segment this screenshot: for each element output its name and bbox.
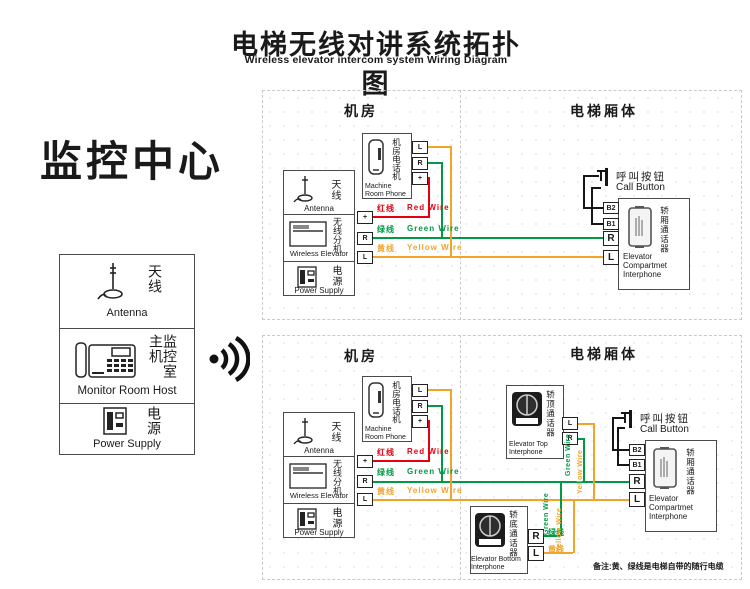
wire-label-green: 绿线 Green Wire	[377, 224, 460, 235]
terminal-r: R	[412, 400, 428, 413]
red-wire	[373, 460, 430, 462]
call-button-wire	[591, 188, 593, 225]
terminal-plus: +	[412, 415, 428, 428]
antenna-icon	[293, 417, 315, 447]
call-button-icon	[600, 171, 602, 181]
wireless-unit-label-en: Wireless Elevator	[284, 250, 354, 259]
terminal-b1: B1	[629, 459, 645, 471]
terminal-l: L	[357, 493, 373, 506]
compartment-interphone-icon	[652, 447, 678, 489]
wiring-diagram-canvas: 电梯无线对讲系统拓扑图 Wireless elevator intercom s…	[0, 0, 750, 589]
call-button-wire	[583, 175, 599, 177]
monitor-antenna-label-zh: 天线	[148, 264, 162, 306]
compartment-interphone-label-zh: 轿厢通话器	[660, 206, 669, 254]
speaker-icon	[474, 512, 506, 548]
station-divider-1	[283, 456, 355, 457]
handset-icon	[366, 382, 386, 420]
wire-label-green: 绿线 Green Wire	[377, 467, 460, 478]
bottom-elevator-car-header: 电梯厢体	[570, 344, 638, 364]
monitor-divider-1	[59, 328, 195, 329]
bottom-diagram-divider	[460, 335, 461, 580]
wireless-unit-icon	[289, 221, 327, 247]
monitor-power-label-en: Power Supply	[61, 438, 193, 451]
terminal-r: R	[357, 475, 373, 488]
call-button-wire	[583, 207, 603, 209]
bottom-interphone-label-zh: 轿底通话器	[509, 510, 518, 560]
call-button-wire	[617, 428, 619, 466]
call-button-label-en: Call Button	[616, 182, 665, 193]
wire-label-red: 红线 Red Wire	[377, 203, 450, 214]
compartment-interphone-label-zh: 轿厢通话器	[686, 448, 695, 496]
terminal-plus: +	[412, 172, 428, 185]
call-button-wire	[617, 427, 625, 429]
machine-room-phone-label-en: Machine Room Phone	[365, 183, 411, 199]
page-subtitle: Wireless elevator intercom system Wiring…	[231, 54, 521, 66]
station-divider-2	[283, 261, 355, 262]
green-wire	[428, 162, 441, 164]
terminal-l: L	[357, 251, 373, 264]
yellow-wire	[573, 501, 575, 553]
green-wire-en: Green Wire	[407, 224, 460, 235]
top-interphone-label-zh: 轿顶通话器	[546, 390, 555, 440]
top-diagram-divider	[460, 90, 461, 320]
compartment-interphone-label-en: Elevator Compartmet Interphone	[623, 252, 687, 280]
yellow-wire-vertical-label: Yellow Wire	[577, 450, 584, 494]
station-divider-1	[283, 214, 355, 215]
speaker-icon	[511, 391, 543, 427]
wireless-unit-icon	[289, 463, 327, 489]
monitor-center-title: 监控中心	[40, 128, 224, 189]
bottom-machine-room-header: 机房	[344, 346, 378, 366]
machine-room-phone-label-zh: 机房电话机	[392, 138, 401, 184]
terminal-l: L	[528, 546, 544, 561]
wire-label-yellow: 黄线 Yellow Wire	[377, 486, 462, 497]
yellow-wire	[450, 389, 452, 501]
terminal-l: L	[562, 417, 578, 430]
terminal-r: R	[629, 474, 645, 489]
monitor-host-label-zh: 监控室主机	[143, 334, 177, 384]
antenna-icon	[96, 261, 126, 303]
wire-label-red: 红线 Red Wire	[377, 447, 450, 458]
terminal-l: L	[412, 384, 428, 397]
station-divider-2	[283, 503, 355, 504]
top-machine-room-header: 机房	[344, 101, 378, 121]
yellow-wire	[428, 146, 450, 148]
terminal-l: L	[603, 250, 619, 265]
yellow-wire	[593, 423, 595, 501]
handset-icon	[366, 139, 386, 177]
green-wire	[373, 237, 603, 239]
footnote: 备注:黄、绿线是电梯自带的随行电缆	[593, 561, 724, 572]
yellow-wire	[450, 146, 452, 257]
bottom-interphone-label-en: Elevator Bottom Interphone	[471, 556, 527, 572]
terminal-r: R	[412, 157, 428, 170]
terminal-l: L	[412, 141, 428, 154]
yellow-wire-en: Yellow Wire	[407, 243, 462, 254]
call-button-icon	[624, 413, 626, 423]
yellow-wire-en: Yellow Wire	[407, 486, 462, 497]
monitor-divider-2	[59, 403, 195, 404]
red-wire-zh: 红线	[377, 203, 395, 214]
green-wire-vertical-label: Green Wire	[565, 434, 572, 476]
monitor-host-phone-icon	[74, 339, 138, 381]
yellow-wire-zh: 黄线	[377, 486, 395, 497]
green-wire-vertical-label: Green Wire	[543, 493, 550, 535]
call-button-wire	[583, 176, 585, 209]
red-wire-en: Red Wire	[407, 203, 450, 214]
compartment-interphone-label-en: Elevator Compartmet Interphone	[649, 494, 713, 522]
station-antenna-label-en: Antenna	[284, 446, 354, 455]
call-button-wire	[591, 187, 601, 189]
top-interphone-label-en: Elevator Top Interphone	[509, 441, 563, 457]
terminal-l: L	[629, 492, 645, 507]
red-wire-en: Red Wire	[407, 447, 450, 458]
station-power-label-en: Power Supply	[284, 286, 354, 295]
top-elevator-car-header: 电梯厢体	[570, 101, 638, 121]
terminal-b2: B2	[629, 444, 645, 456]
call-button-icon	[629, 410, 632, 428]
wireless-unit-label-en: Wireless Elevator	[284, 492, 354, 501]
call-button-icon	[597, 170, 605, 172]
station-antenna-label-en: Antenna	[284, 204, 354, 213]
yellow-wire	[373, 256, 603, 258]
green-wire	[428, 405, 441, 407]
call-button-label-en: Call Button	[640, 424, 689, 435]
wire-label-yellow: 黄线 Yellow Wire	[377, 243, 462, 254]
call-button-icon	[621, 412, 629, 414]
station-power-label-en: Power Supply	[284, 528, 354, 537]
terminal-plus: +	[357, 455, 373, 468]
compartment-interphone-icon	[627, 206, 653, 248]
power-supply-icon	[297, 508, 317, 530]
call-button-wire	[612, 418, 614, 451]
yellow-wire-vertical-label: Yellow Wire	[556, 508, 563, 552]
monitor-antenna-label-en: Antenna	[61, 307, 193, 320]
terminal-b2: B2	[603, 202, 619, 214]
terminal-r: R	[603, 231, 619, 246]
terminal-r: R	[528, 529, 544, 544]
call-button-icon	[605, 168, 608, 186]
call-button-wire	[612, 417, 624, 419]
terminal-b1: B1	[603, 218, 619, 230]
machine-room-phone-label-zh: 机房电话机	[392, 381, 401, 427]
terminal-r: R	[357, 232, 373, 245]
green-wire-zh: 绿线	[377, 224, 395, 235]
machine-room-phone-label-en: Machine Room Phone	[365, 426, 411, 442]
yellow-wire	[428, 389, 450, 391]
red-wire-zh: 红线	[377, 447, 395, 458]
terminal-plus: +	[357, 211, 373, 224]
wireless-signal-icon	[208, 334, 250, 384]
yellow-wire	[373, 499, 629, 501]
red-wire	[373, 216, 430, 218]
monitor-power-icon	[103, 407, 127, 435]
green-wire-en: Green Wire	[407, 467, 460, 478]
antenna-icon	[293, 175, 315, 205]
monitor-host-label-en: Monitor Room Host	[61, 385, 193, 398]
call-button-wire	[612, 449, 629, 451]
green-wire-zh: 绿线	[377, 467, 395, 478]
power-supply-icon	[297, 266, 317, 288]
yellow-wire-zh: 黄线	[377, 243, 395, 254]
monitor-power-label-zh: 电源	[147, 406, 161, 440]
green-wire	[373, 481, 629, 483]
